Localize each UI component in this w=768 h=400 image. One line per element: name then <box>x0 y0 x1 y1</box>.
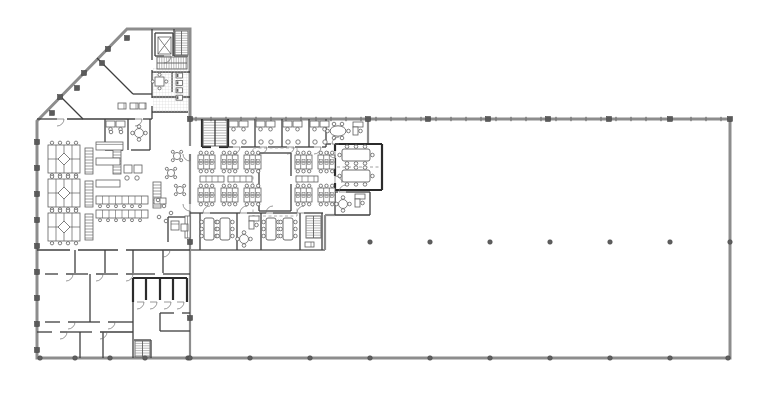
structural-column <box>82 71 87 76</box>
mullion-tick <box>585 117 586 121</box>
structural-column <box>488 240 493 245</box>
structural-column <box>248 356 253 361</box>
confv-symbol <box>262 218 280 240</box>
mullion-tick <box>465 117 466 121</box>
chair-symbol <box>109 130 113 134</box>
pod6-symbol <box>198 184 215 206</box>
structural-column <box>668 117 673 122</box>
structural-column <box>143 356 148 361</box>
cafe-symbol <box>174 184 185 195</box>
bench-symbol <box>96 142 123 150</box>
structural-column <box>188 240 193 245</box>
floor-plan-viewport <box>0 0 768 400</box>
shelf-symbol <box>85 148 93 174</box>
chair-symbol <box>164 219 168 223</box>
mullion-tick <box>345 117 346 121</box>
structural-column <box>608 356 613 361</box>
pod6-symbol <box>295 151 312 173</box>
chair-symbol <box>119 130 123 134</box>
mullion-tick <box>525 117 526 121</box>
structural-column <box>50 111 55 116</box>
mullion-tick <box>705 117 706 121</box>
pod6-symbol <box>198 151 215 173</box>
structural-column <box>35 322 40 327</box>
copier-symbol <box>171 221 179 230</box>
mullion-tick <box>255 117 256 121</box>
pod6-symbol <box>221 184 238 206</box>
structural-column <box>35 296 40 301</box>
structural-column <box>608 240 613 245</box>
structural-column <box>35 192 40 197</box>
cafe-symbol <box>165 167 176 178</box>
structural-column <box>38 356 43 361</box>
structural-column <box>426 117 431 122</box>
mullion-tick <box>210 117 211 121</box>
mullion-tick <box>270 117 271 121</box>
pod6-symbol <box>318 151 335 173</box>
confv-symbol <box>279 218 297 240</box>
cab-symbol <box>305 242 314 247</box>
structural-column <box>58 95 63 100</box>
mullion-tick <box>330 117 331 121</box>
cab-symbol <box>200 176 224 182</box>
podd-symbol <box>48 209 80 245</box>
mullion-tick <box>285 117 286 121</box>
mullion-tick <box>600 117 601 121</box>
structural-column <box>428 356 433 361</box>
cafe-symbol <box>171 150 182 161</box>
structural-column <box>75 86 80 91</box>
cab-symbol <box>296 176 318 182</box>
mullion-tick <box>615 117 616 121</box>
structural-column <box>668 240 673 245</box>
structural-column <box>548 240 553 245</box>
cab-symbol <box>181 224 188 231</box>
mullion-tick <box>240 117 241 121</box>
mullion-tick <box>225 117 226 121</box>
structural-column <box>100 61 105 66</box>
mullion-tick <box>495 117 496 121</box>
structural-column <box>726 356 731 361</box>
structural-column <box>35 140 40 145</box>
cab-symbol <box>118 103 126 109</box>
podd-symbol <box>48 141 80 177</box>
mullion-tick <box>450 117 451 121</box>
mullion-tick <box>645 117 646 121</box>
structural-column <box>73 356 78 361</box>
structural-column <box>188 356 193 361</box>
mullion-tick <box>570 117 571 121</box>
mullion-tick <box>690 117 691 121</box>
mullion-tick <box>360 117 361 121</box>
mullion-tick <box>510 117 511 121</box>
structural-column <box>35 244 40 249</box>
structural-column <box>188 117 193 122</box>
chair-symbol <box>169 211 173 215</box>
shelf-symbol <box>85 214 93 240</box>
shelf-symbol <box>85 181 93 207</box>
mullion-tick <box>405 117 406 121</box>
structural-column <box>35 218 40 223</box>
structural-column <box>728 240 733 245</box>
chair-symbol <box>156 198 160 202</box>
chair-symbol <box>162 204 166 208</box>
pod6-symbol <box>244 151 261 173</box>
structural-column <box>668 356 673 361</box>
cab-symbol <box>130 103 138 109</box>
structural-column <box>35 348 40 353</box>
pod6-symbol <box>244 184 261 206</box>
structural-column <box>546 117 551 122</box>
mullion-tick <box>630 117 631 121</box>
structural-column <box>607 117 612 122</box>
structural-column <box>35 166 40 171</box>
confv-symbol <box>216 218 234 240</box>
pod6-symbol <box>318 184 335 206</box>
structural-column <box>488 356 493 361</box>
structural-column <box>106 47 111 52</box>
structural-column <box>728 117 733 122</box>
structural-column <box>368 356 373 361</box>
structural-column <box>188 316 193 321</box>
structural-column <box>125 36 130 41</box>
mullion-tick <box>480 117 481 121</box>
mullion-tick <box>420 117 421 121</box>
structural-column <box>368 240 373 245</box>
structural-column <box>548 356 553 361</box>
mullion-tick <box>195 117 196 121</box>
floor-plan-svg <box>0 0 768 400</box>
structural-column <box>108 356 113 361</box>
pod6-symbol <box>295 184 312 206</box>
structural-column <box>366 117 371 122</box>
pod6-symbol <box>221 151 238 173</box>
mullion-tick <box>315 117 316 121</box>
mullion-tick <box>720 117 721 121</box>
mullion-tick <box>660 117 661 121</box>
cab-symbol <box>154 198 166 204</box>
mullion-tick <box>390 117 391 121</box>
chair-symbol <box>157 215 161 219</box>
structural-column <box>308 356 313 361</box>
podd-symbol <box>48 175 80 211</box>
mullion-tick <box>300 117 301 121</box>
mullion-tick <box>375 117 376 121</box>
mullion-tick <box>555 117 556 121</box>
structural-column <box>486 117 491 122</box>
mullion-tick <box>435 117 436 121</box>
structural-column <box>428 240 433 245</box>
cab-symbol <box>139 103 146 109</box>
cab-symbol <box>228 176 252 182</box>
structural-column <box>35 270 40 275</box>
mullion-tick <box>540 117 541 121</box>
